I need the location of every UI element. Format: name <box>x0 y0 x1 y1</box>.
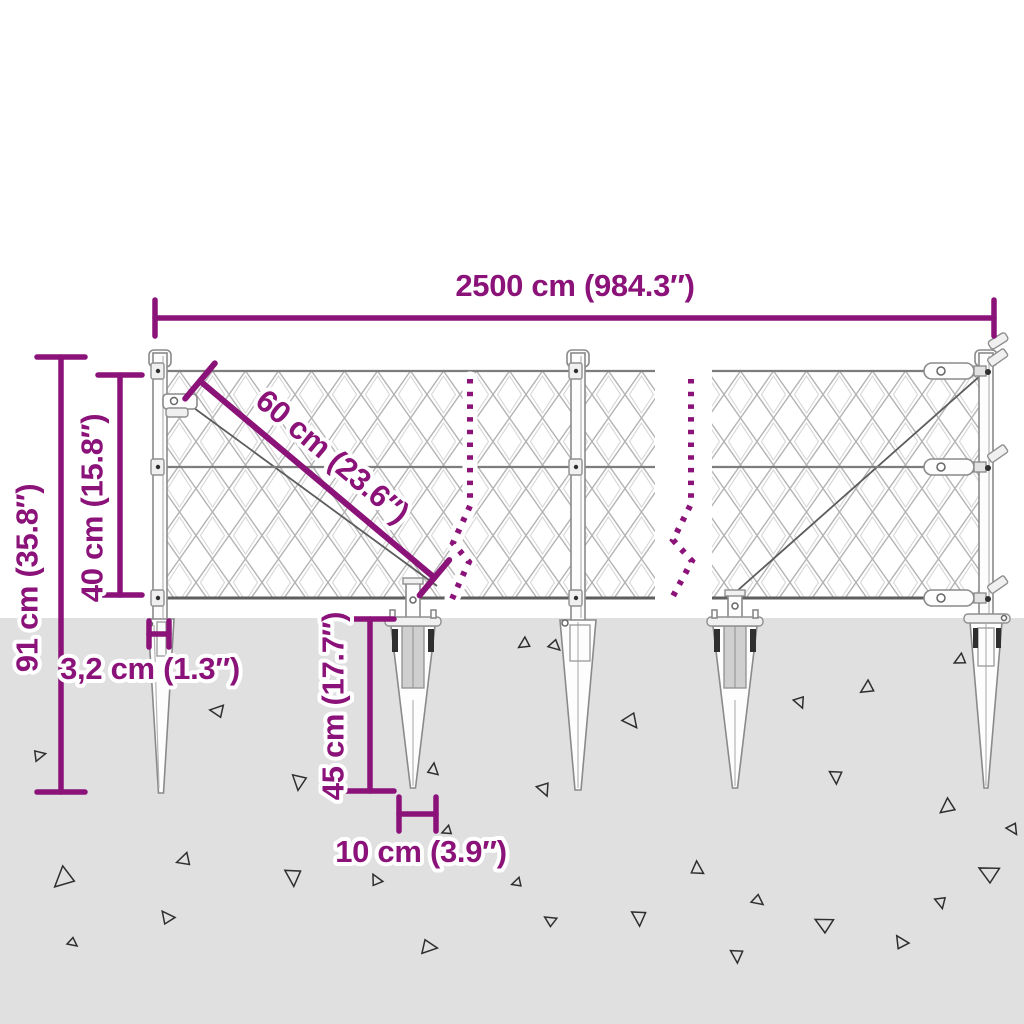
anchor-stub-2 <box>725 590 745 620</box>
label-total-width: 2500 cm (984.3″) <box>455 268 694 303</box>
break-line-right <box>672 379 692 598</box>
fence-post-middle <box>567 350 589 621</box>
diagram-page: 2500 cm (984.3″) 91 cm (35.8″) 40 cm (15… <box>0 0 1024 1024</box>
fence-dimension-diagram: 2500 cm (984.3″) 91 cm (35.8″) 40 cm (15… <box>0 0 1024 1024</box>
tensioner-top <box>924 348 1008 379</box>
label-mesh-height: 40 cm (15.8″) <box>75 414 110 602</box>
dimension-total-width: 2500 cm (984.3″) <box>155 268 994 336</box>
dimension-mesh-height: 40 cm (15.8″) <box>75 375 143 602</box>
anchor-stub-1 <box>403 578 423 620</box>
label-spike-base-width: 10 cm (3.9″) <box>335 834 507 869</box>
label-total-height: 91 cm (35.8″) <box>10 484 45 672</box>
label-spike-depth: 45 cm (17.7″) <box>316 612 351 800</box>
label-post-width: 3,2 cm (1.3″) <box>60 651 240 686</box>
